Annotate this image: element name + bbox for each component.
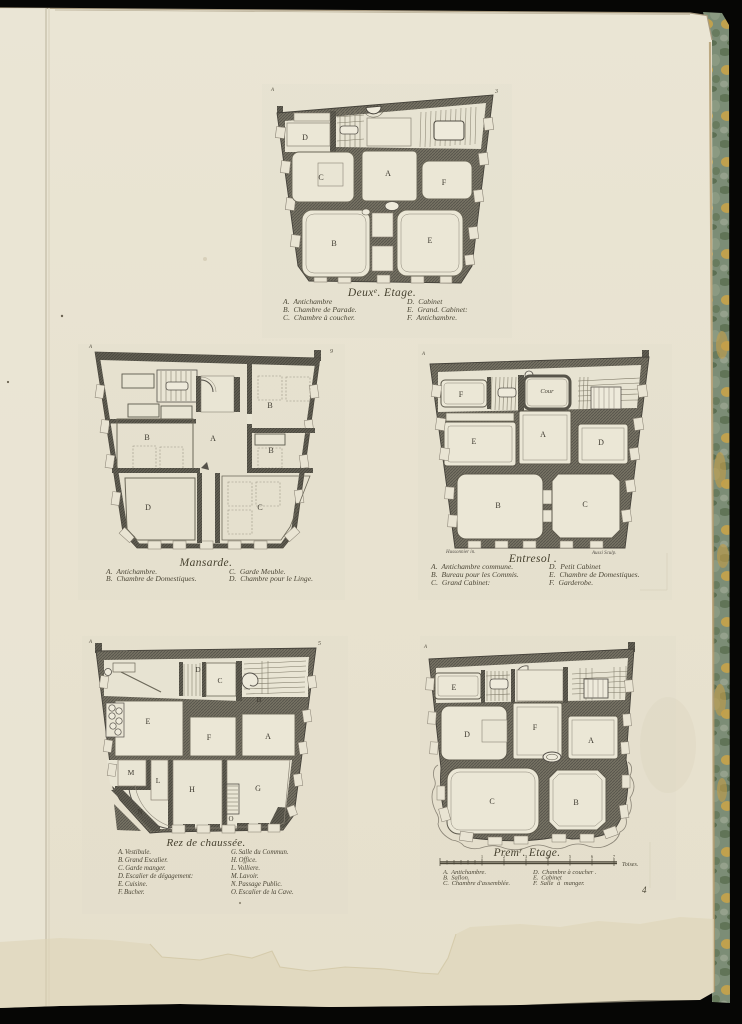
svg-text:A: A [210,434,216,443]
svg-text:A: A [265,732,271,741]
svg-text:C.Garde manger.: C.Garde manger. [118,865,166,872]
svg-text:E: E [452,683,457,692]
svg-text:D: D [598,438,604,447]
svg-text:F: F [459,390,464,399]
svg-text:N.Passage Public.: N.Passage Public. [230,881,282,888]
svg-text:A.Vestibule.: A.Vestibule. [117,849,151,856]
svg-text:Hussonnier in.: Hussonnier in. [445,550,475,555]
svg-text:D: D [302,133,308,142]
svg-text:B: B [331,239,336,248]
svg-text:B: B [573,798,578,807]
svg-text:2: 2 [503,854,505,859]
svg-text:F.Bucher.: F.Bucher. [117,889,145,896]
svg-text:D: D [195,665,201,674]
svg-text:Mansarde.: Mansarde. [179,557,233,569]
svg-text:Rez de chaussée.: Rez de chaussée. [165,837,245,849]
svg-text:O: O [228,815,233,823]
svg-text:C. Chambre d'assemblée.: C. Chambre d'assemblée. [443,880,511,887]
svg-text:G: G [255,784,261,793]
svg-text:A: A [540,430,546,439]
svg-text:C: C [489,797,494,806]
svg-text:L: L [156,776,161,785]
svg-text:L.Volliere.: L.Volliere. [230,865,260,872]
svg-text:E: E [472,437,477,446]
svg-text:F. Antichambre.: F. Antichambre. [406,313,457,322]
svg-text:E: E [428,236,433,245]
svg-text:B: B [256,695,261,704]
svg-text:H.Office.: H.Office. [230,857,257,864]
svg-text:H: H [189,785,195,794]
svg-text:Toises.: Toises. [622,862,638,868]
svg-text:C: C [257,503,262,512]
svg-text:F. Salle à manger.: F. Salle à manger. [532,880,585,887]
svg-text:Deuxe. Etage.: Deuxe. Etage. [347,286,416,299]
svg-text:C: C [217,676,222,685]
svg-text:E: E [146,717,151,726]
svg-text:G.Salle du Commun.: G.Salle du Commun. [231,849,289,856]
svg-text:A: A [385,169,391,178]
svg-text:D: D [464,730,470,739]
svg-text:5: 5 [318,641,321,647]
svg-text:Aussi Sculp.: Aussi Sculp. [591,551,616,556]
svg-text:B: B [144,433,149,442]
svg-text:4: 4 [642,885,647,895]
svg-text:C: C [318,173,323,182]
svg-text:B.Grand Escalier.: B.Grand Escalier. [118,857,168,864]
svg-text:M: M [128,768,135,777]
svg-text:C. Chambre à coucher.: C. Chambre à coucher. [283,313,355,322]
svg-text:F: F [533,723,538,732]
svg-text:N: N [137,807,143,816]
svg-text:Cour: Cour [540,388,554,395]
svg-text:F. Garderobe.: F. Garderobe. [548,578,593,587]
svg-text:B: B [268,446,273,455]
svg-text:3: 3 [494,89,498,95]
svg-text:9: 9 [330,349,333,355]
svg-text:F: F [207,733,212,742]
svg-text:F: F [442,178,447,187]
svg-text:O.Escalier de la Cave.: O.Escalier de la Cave. [231,889,294,896]
svg-text:B: B [495,501,500,510]
svg-text:E.Cuisine.: E.Cuisine. [117,881,148,888]
svg-text:B: B [267,401,272,410]
svg-text:M.Lavoir.: M.Lavoir. [230,873,259,880]
svg-text:1: 1 [481,854,483,859]
svg-text:A: A [588,736,594,745]
svg-text:B. Chambre de Domestiques.: B. Chambre de Domestiques. [106,574,197,583]
svg-text:C: C [582,500,587,509]
svg-text:D.Escalier de dégagement:: D.Escalier de dégagement: [117,873,193,880]
svg-text:D: D [145,503,151,512]
svg-text:D. Chambre pour le Linge.: D. Chambre pour le Linge. [228,574,313,583]
